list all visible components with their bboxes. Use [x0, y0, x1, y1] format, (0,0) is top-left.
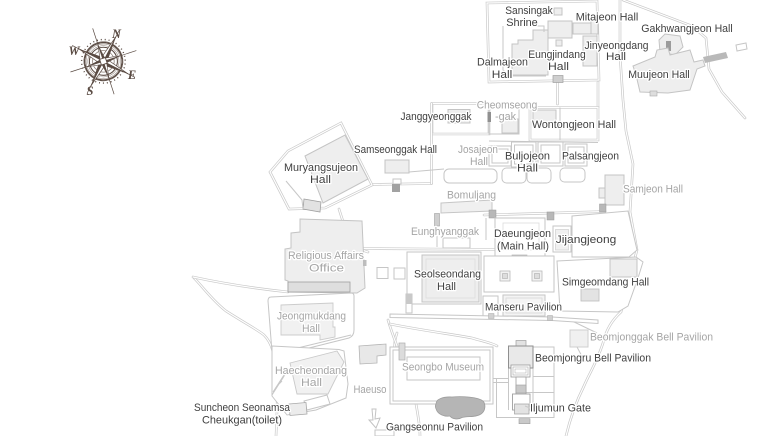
svg-text:Hall: Hall	[310, 174, 331, 186]
svg-text:Wontongjeon Hall: Wontongjeon Hall	[532, 119, 616, 131]
svg-text:Samjeon Hall: Samjeon Hall	[623, 184, 683, 196]
svg-text:Buljojeon: Buljojeon	[505, 151, 550, 163]
svg-text:Janggyeonggak: Janggyeonggak	[401, 111, 472, 123]
svg-text:W: W	[68, 44, 80, 58]
svg-text:Cheukgan(toilet): Cheukgan(toilet)	[202, 415, 282, 427]
svg-text:Religious Affairs: Religious Affairs	[288, 250, 364, 262]
svg-text:Cheomseong: Cheomseong	[477, 100, 538, 112]
svg-text:Hall: Hall	[548, 61, 569, 73]
svg-text:Hall: Hall	[470, 156, 488, 168]
svg-text:Office: Office	[309, 263, 344, 275]
svg-text:Hall: Hall	[606, 51, 626, 63]
svg-text:Suncheon Seonamsa: Suncheon Seonamsa	[194, 402, 291, 414]
svg-text:Haecheondang: Haecheondang	[275, 365, 347, 377]
svg-text:Hall: Hall	[517, 163, 538, 175]
svg-text:Hall: Hall	[302, 323, 320, 335]
svg-text:Beomjonggak Bell Pavilion: Beomjonggak Bell Pavilion	[590, 332, 713, 344]
svg-text:Haeuso: Haeuso	[354, 384, 387, 396]
svg-text:Daeungjeon: Daeungjeon	[494, 228, 551, 240]
svg-text:Jijangjeong: Jijangjeong	[556, 234, 617, 246]
svg-text:Dalmajeon: Dalmajeon	[477, 57, 528, 69]
svg-text:Eungjindang: Eungjindang	[528, 49, 586, 61]
svg-text:Manseru Pavilion: Manseru Pavilion	[485, 302, 562, 314]
svg-text:Seolseondang: Seolseondang	[414, 269, 481, 281]
svg-text:Seongbo Museum: Seongbo Museum	[402, 362, 484, 374]
svg-text:Mitajeon Hall: Mitajeon Hall	[576, 12, 639, 24]
svg-text:Beomjongru Bell Pavilion: Beomjongru Bell Pavilion	[535, 353, 651, 365]
svg-text:Gakhwangjeon Hall: Gakhwangjeon Hall	[641, 23, 733, 35]
svg-text:Gangseonnu Pavilion: Gangseonnu Pavilion	[386, 422, 483, 434]
svg-text:N: N	[111, 27, 122, 41]
svg-text:Bomuljang: Bomuljang	[447, 190, 496, 202]
svg-text:Samseonggak Hall: Samseonggak Hall	[354, 144, 437, 156]
svg-text:Shrine: Shrine	[506, 17, 538, 29]
svg-text:Simgeomdang Hall: Simgeomdang Hall	[562, 277, 649, 289]
svg-text:Eunghyanggak: Eunghyanggak	[411, 226, 479, 238]
svg-text:Hall: Hall	[492, 69, 513, 81]
svg-text:(Main Hall): (Main Hall)	[497, 241, 549, 253]
svg-text:Hall: Hall	[301, 377, 322, 389]
svg-text:-gak: -gak	[495, 111, 516, 123]
svg-text:Muujeon Hall: Muujeon Hall	[628, 69, 690, 81]
svg-text:Palsangjeon: Palsangjeon	[562, 151, 619, 163]
svg-text:S: S	[87, 84, 94, 98]
svg-text:Josajeon: Josajeon	[458, 144, 498, 156]
svg-text:Muryangsujeon: Muryangsujeon	[284, 162, 358, 174]
svg-text:Hall: Hall	[437, 281, 456, 293]
svg-text:Iljumun Gate: Iljumun Gate	[530, 403, 591, 415]
svg-text:Jeongmukdang: Jeongmukdang	[277, 311, 346, 323]
svg-text:Sansingak: Sansingak	[505, 5, 553, 17]
svg-text:E: E	[127, 68, 136, 82]
